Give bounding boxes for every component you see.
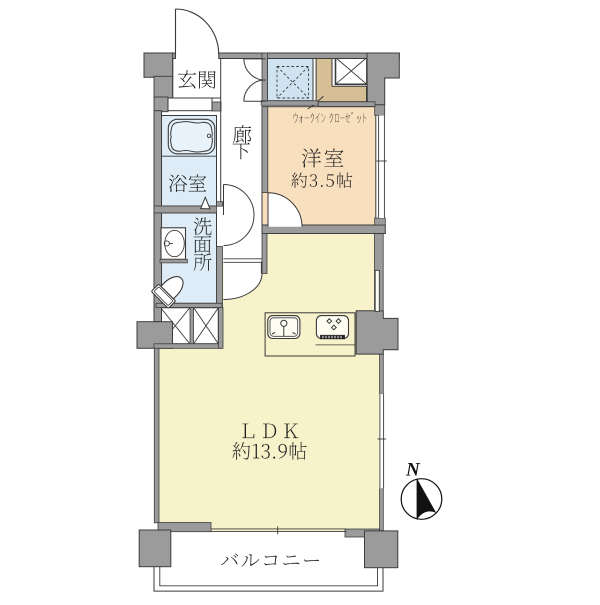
svg-text:N: N	[405, 460, 421, 481]
